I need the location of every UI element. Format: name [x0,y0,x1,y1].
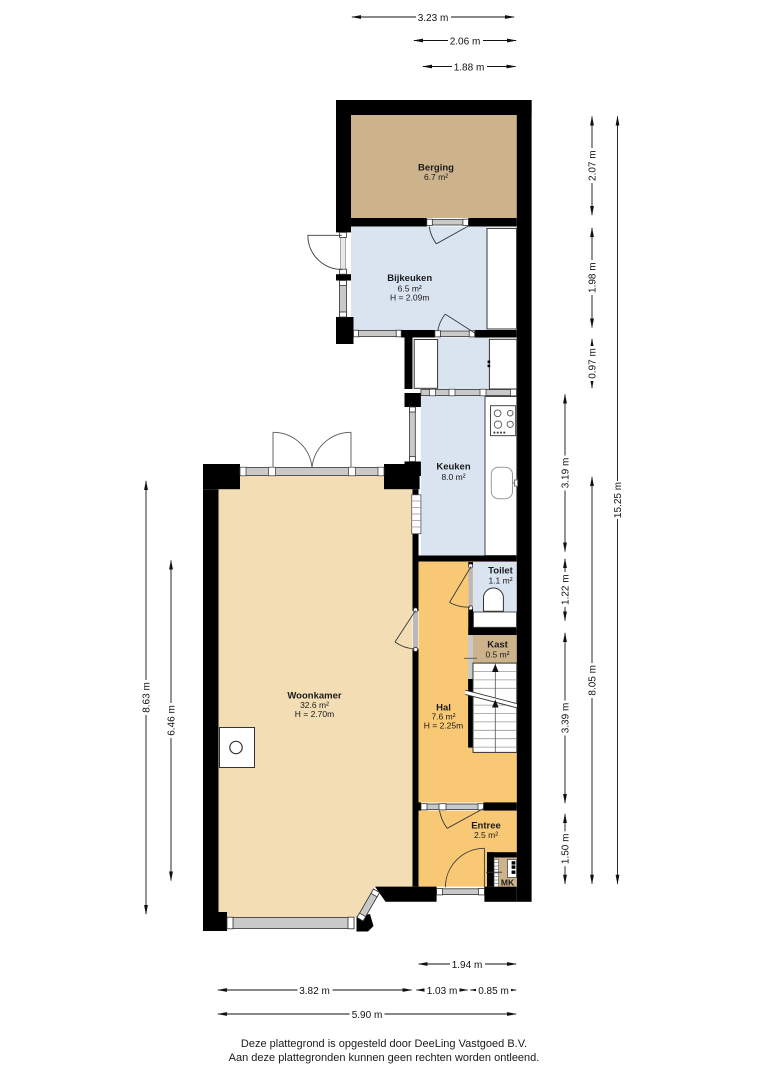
svg-text:3.23 m: 3.23 m [418,13,449,24]
svg-text:5.90 m: 5.90 m [352,1010,383,1021]
svg-text:15.25 m: 15.25 m [613,482,624,518]
svg-text:1.50 m: 1.50 m [561,834,572,865]
svg-text:H = 2.70m: H = 2.70m [295,709,334,719]
svg-text:0.97 m: 0.97 m [588,348,599,379]
svg-text:1.94 m: 1.94 m [452,960,483,971]
svg-text:6.7 m²: 6.7 m² [424,172,448,182]
svg-text:H = 2.25m: H = 2.25m [424,721,463,731]
svg-text:Keuken: Keuken [436,462,471,473]
svg-text:2.5 m²: 2.5 m² [474,830,498,840]
svg-text:Bijkeuken: Bijkeuken [387,273,432,284]
svg-text:1.22 m: 1.22 m [561,574,572,605]
svg-text:H = 2.09m: H = 2.09m [390,292,429,302]
svg-text:Deze plattegrond is opgesteld: Deze plattegrond is opgesteld door DeeLi… [241,1038,527,1050]
svg-text:1.1 m²: 1.1 m² [488,576,512,586]
svg-text:Aan deze plattegronden kunnen: Aan deze plattegronden kunnen geen recht… [229,1052,540,1064]
svg-text:3.19 m: 3.19 m [561,458,572,489]
svg-text:8.05 m: 8.05 m [588,665,599,696]
svg-text:3.82 m: 3.82 m [299,986,330,997]
svg-text:8.0 m²: 8.0 m² [441,472,465,482]
svg-text:1.88 m: 1.88 m [454,63,485,74]
svg-text:MK: MK [501,878,515,888]
svg-text:8.63 m: 8.63 m [142,682,153,713]
svg-text:0.5 m²: 0.5 m² [485,649,509,659]
svg-text:0.85 m: 0.85 m [478,986,509,997]
svg-text:6.46 m: 6.46 m [167,705,178,736]
svg-text:1.03 m: 1.03 m [427,986,458,997]
svg-text:3.39 m: 3.39 m [561,703,572,734]
svg-text:2.07 m: 2.07 m [588,150,599,181]
svg-text:1.98 m: 1.98 m [588,262,599,293]
svg-text:2.06 m: 2.06 m [450,37,481,48]
